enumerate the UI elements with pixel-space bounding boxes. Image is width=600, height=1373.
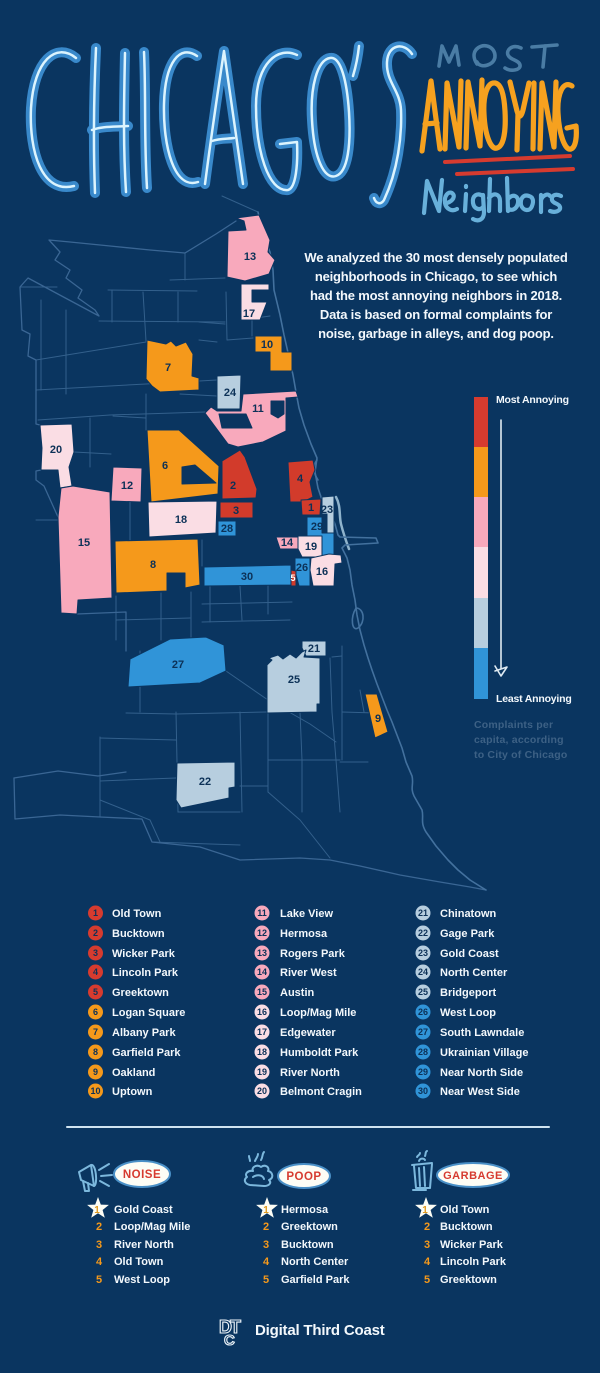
svg-text:2: 2 (263, 1221, 269, 1233)
svg-text:24: 24 (224, 387, 237, 399)
svg-text:Albany Park: Albany Park (112, 1027, 176, 1039)
svg-text:26: 26 (418, 1007, 428, 1017)
svg-text:Lincoln Park: Lincoln Park (112, 967, 179, 979)
svg-text:21: 21 (308, 643, 320, 655)
svg-text:Belmont Cragin: Belmont Cragin (280, 1086, 362, 1098)
svg-text:12: 12 (121, 480, 133, 492)
svg-text:River North: River North (280, 1067, 340, 1079)
svg-text:16: 16 (316, 566, 328, 578)
svg-text:5: 5 (93, 987, 98, 997)
svg-text:5: 5 (290, 573, 295, 583)
svg-text:27: 27 (418, 1027, 428, 1037)
svg-text:Loop/Mag Mile: Loop/Mag Mile (114, 1221, 190, 1233)
svg-text:Data is based on formal compla: Data is based on formal complaints for (320, 307, 552, 322)
svg-text:Edgewater: Edgewater (280, 1027, 336, 1039)
svg-text:2: 2 (96, 1221, 102, 1233)
svg-text:1: 1 (422, 1205, 428, 1216)
svg-text:6: 6 (162, 460, 168, 472)
svg-text:Bucktown: Bucktown (440, 1221, 493, 1233)
svg-text:noise, garbage in alleys, and: noise, garbage in alleys, and dog poop. (318, 326, 554, 341)
svg-text:2: 2 (93, 928, 98, 938)
svg-text:1: 1 (308, 502, 314, 514)
svg-text:18: 18 (175, 514, 187, 526)
svg-text:13: 13 (257, 948, 267, 958)
svg-text:1: 1 (94, 1205, 100, 1216)
svg-text:7: 7 (165, 362, 171, 374)
svg-text:Near West Side: Near West Side (440, 1086, 520, 1098)
svg-text:3: 3 (96, 1239, 102, 1251)
svg-text:3: 3 (424, 1239, 430, 1251)
svg-text:27: 27 (172, 659, 184, 671)
svg-text:Uptown: Uptown (112, 1086, 153, 1098)
svg-text:8: 8 (93, 1047, 98, 1057)
svg-text:Bridgeport: Bridgeport (440, 987, 497, 999)
svg-text:22: 22 (418, 928, 428, 938)
svg-text:5: 5 (96, 1274, 102, 1286)
svg-text:9: 9 (375, 713, 381, 725)
svg-text:10: 10 (90, 1086, 100, 1096)
svg-text:4: 4 (424, 1256, 431, 1268)
svg-text:4: 4 (263, 1256, 270, 1268)
svg-text:11: 11 (252, 403, 264, 415)
svg-text:3: 3 (93, 948, 98, 958)
svg-text:30: 30 (418, 1086, 428, 1096)
svg-text:Garfield Park: Garfield Park (112, 1047, 181, 1059)
svg-text:Digital Third Coast: Digital Third Coast (255, 1322, 385, 1339)
svg-text:Gold Coast: Gold Coast (114, 1204, 173, 1216)
svg-text:23: 23 (321, 504, 333, 516)
svg-text:had the most annoying neighbor: had the most annoying neighbors in 2018. (310, 288, 562, 303)
svg-text:Hermosa: Hermosa (281, 1204, 329, 1216)
svg-text:3: 3 (263, 1239, 269, 1251)
svg-text:GARBAGE: GARBAGE (443, 1170, 503, 1182)
svg-text:Complaints per: Complaints per (474, 719, 553, 731)
svg-text:Chinatown: Chinatown (440, 908, 496, 920)
svg-text:C: C (224, 1332, 235, 1349)
svg-text:Garfield Park: Garfield Park (281, 1274, 350, 1286)
svg-text:Old Town: Old Town (112, 908, 162, 920)
svg-text:River West: River West (280, 967, 337, 979)
svg-text:28: 28 (221, 523, 233, 535)
svg-text:23: 23 (418, 948, 428, 958)
svg-text:Gage Park: Gage Park (440, 928, 495, 940)
svg-text:Logan Square: Logan Square (112, 1007, 185, 1019)
svg-text:19: 19 (305, 541, 317, 553)
svg-text:1: 1 (263, 1205, 269, 1216)
svg-text:19: 19 (257, 1067, 267, 1077)
svg-text:Lake View: Lake View (280, 908, 333, 920)
svg-text:Austin: Austin (280, 987, 315, 999)
svg-text:South Lawndale: South Lawndale (440, 1027, 524, 1039)
svg-text:Oakland: Oakland (112, 1067, 155, 1079)
svg-text:Ukrainian Village: Ukrainian Village (440, 1047, 528, 1059)
svg-text:We analyzed the 30 most densel: We analyzed the 30 most densely populate… (304, 250, 567, 265)
svg-text:29: 29 (311, 521, 323, 533)
svg-text:West Loop: West Loop (114, 1274, 170, 1286)
svg-text:30: 30 (241, 571, 253, 583)
svg-text:4: 4 (96, 1256, 103, 1268)
svg-text:9: 9 (93, 1067, 98, 1077)
svg-text:Gold Coast: Gold Coast (440, 948, 499, 960)
svg-text:Old Town: Old Town (114, 1256, 164, 1268)
svg-text:River North: River North (114, 1239, 174, 1251)
svg-text:Least Annoying: Least Annoying (496, 693, 572, 705)
svg-text:10: 10 (261, 339, 273, 351)
svg-text:5: 5 (424, 1274, 430, 1286)
svg-text:Bucktown: Bucktown (112, 928, 165, 940)
svg-text:20: 20 (50, 444, 62, 456)
svg-text:16: 16 (257, 1007, 267, 1017)
svg-text:Old Town: Old Town (440, 1204, 490, 1216)
svg-text:Wicker Park: Wicker Park (112, 948, 176, 960)
svg-text:North Center: North Center (440, 967, 508, 979)
svg-text:6: 6 (93, 1007, 98, 1017)
svg-text:to City of Chicago: to City of Chicago (474, 749, 567, 761)
svg-text:NOISE: NOISE (123, 1169, 161, 1181)
svg-text:15: 15 (78, 537, 90, 549)
svg-text:Near North Side: Near North Side (440, 1067, 523, 1079)
svg-text:Loop/Mag Mile: Loop/Mag Mile (280, 1007, 356, 1019)
svg-text:26: 26 (296, 562, 308, 574)
svg-text:Lincoln Park: Lincoln Park (440, 1256, 507, 1268)
svg-text:Greektown: Greektown (440, 1274, 497, 1286)
svg-text:14: 14 (257, 967, 267, 977)
svg-text:3: 3 (233, 505, 239, 517)
svg-text:17: 17 (257, 1027, 267, 1037)
svg-text:North Center: North Center (281, 1256, 349, 1268)
svg-text:2: 2 (424, 1221, 430, 1233)
svg-text:20: 20 (257, 1086, 267, 1096)
svg-text:5: 5 (263, 1274, 269, 1286)
svg-text:25: 25 (288, 674, 300, 686)
svg-text:capita, according: capita, according (474, 734, 564, 746)
svg-text:Greektown: Greektown (281, 1221, 338, 1233)
svg-text:1: 1 (93, 908, 98, 918)
svg-text:12: 12 (257, 928, 267, 938)
svg-text:West Loop: West Loop (440, 1007, 496, 1019)
svg-text:neighborhoods in Chicago, to s: neighborhoods in Chicago, to see which (315, 269, 558, 284)
svg-text:2: 2 (230, 480, 236, 492)
svg-text:8: 8 (150, 559, 156, 571)
svg-text:14: 14 (281, 537, 294, 549)
svg-text:4: 4 (93, 967, 98, 977)
svg-text:21: 21 (418, 908, 428, 918)
svg-text:24: 24 (418, 967, 428, 977)
svg-text:18: 18 (257, 1047, 267, 1057)
svg-text:25: 25 (418, 987, 428, 997)
svg-text:POOP: POOP (286, 1171, 321, 1183)
svg-text:Greektown: Greektown (112, 987, 169, 999)
svg-text:22: 22 (199, 776, 211, 788)
svg-text:15: 15 (257, 987, 267, 997)
svg-text:Hermosa: Hermosa (280, 928, 328, 940)
svg-text:Bucktown: Bucktown (281, 1239, 334, 1251)
svg-text:13: 13 (244, 251, 256, 263)
svg-text:4: 4 (297, 473, 304, 485)
svg-text:7: 7 (93, 1027, 98, 1037)
svg-text:Most Annoying: Most Annoying (496, 394, 569, 406)
svg-text:29: 29 (418, 1067, 428, 1077)
svg-text:17: 17 (243, 308, 255, 320)
svg-text:11: 11 (257, 908, 267, 918)
svg-text:Rogers Park: Rogers Park (280, 948, 346, 960)
svg-text:Wicker Park: Wicker Park (440, 1239, 504, 1251)
svg-text:Humboldt Park: Humboldt Park (280, 1047, 359, 1059)
svg-text:28: 28 (418, 1047, 428, 1057)
